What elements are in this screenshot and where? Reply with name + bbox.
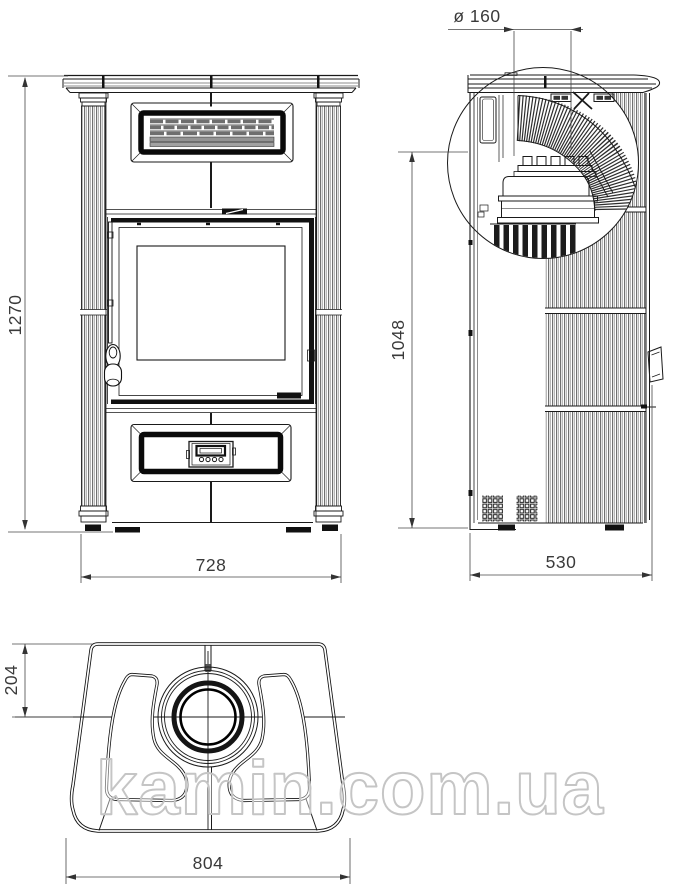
watermark-text: kamin.com.ua (96, 746, 604, 831)
front-right-column (314, 93, 343, 522)
left-column-seams (80, 310, 107, 316)
drawing-canvas: 1270 728 (0, 0, 700, 896)
bottom-vent-grid-1 (482, 496, 503, 522)
grille-slats (150, 119, 274, 147)
stove-technical-drawing: 1270 728 (0, 0, 700, 896)
air-grille (131, 103, 293, 162)
right-column-seams (315, 310, 342, 316)
brand-plate (277, 393, 301, 399)
lcd-screen (197, 446, 226, 456)
flue-diameter-label: ø 160 (453, 6, 500, 26)
front-width-label: 728 (196, 555, 227, 575)
lower-panel (131, 425, 291, 482)
top-width-label: 804 (193, 853, 224, 873)
front-height-label: 1270 (5, 295, 25, 336)
front-left-column (79, 93, 108, 522)
bottom-vent-grid-2 (517, 496, 538, 522)
side-height-label: 1048 (388, 320, 408, 361)
top-rear-offset-label: 204 (1, 665, 21, 696)
side-depth-label: 530 (546, 552, 577, 572)
